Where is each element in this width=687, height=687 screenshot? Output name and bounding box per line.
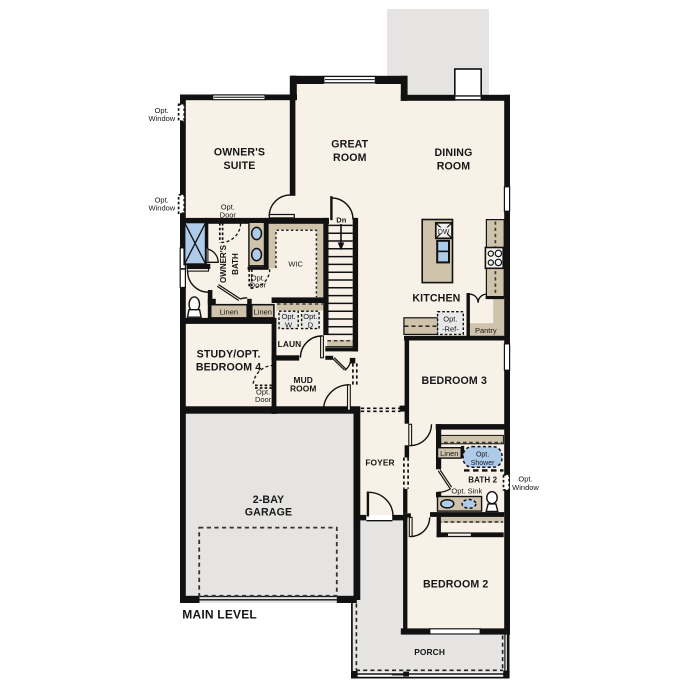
svg-text:-Ref-: -Ref- <box>442 324 459 333</box>
svg-text:Opt. Sink: Opt. Sink <box>451 487 482 496</box>
svg-text:BEDROOM 3: BEDROOM 3 <box>422 375 488 387</box>
svg-text:Window: Window <box>149 203 176 212</box>
svg-text:OWNER'S: OWNER'S <box>219 244 228 283</box>
svg-text:SUITE: SUITE <box>224 160 256 172</box>
svg-text:MAIN LEVEL: MAIN LEVEL <box>182 608 257 622</box>
svg-text:WIC: WIC <box>288 260 303 269</box>
svg-text:DINING: DINING <box>435 147 473 159</box>
svg-text:KITCHEN: KITCHEN <box>412 293 460 305</box>
svg-text:BEDROOM 2: BEDROOM 2 <box>423 579 489 591</box>
svg-text:STUDY/OPT.: STUDY/OPT. <box>197 349 261 361</box>
svg-text:BATH 2: BATH 2 <box>468 476 497 485</box>
svg-text:DW: DW <box>438 229 450 236</box>
svg-text:LAUN: LAUN <box>278 339 302 349</box>
svg-text:Pantry: Pantry <box>475 326 497 335</box>
svg-text:Door: Door <box>255 395 272 404</box>
svg-text:2-BAY: 2-BAY <box>253 494 285 506</box>
svg-text:Linen: Linen <box>254 308 272 317</box>
svg-text:Opt.: Opt. <box>443 314 457 323</box>
svg-text:GREAT: GREAT <box>331 139 368 151</box>
svg-text:D: D <box>308 321 314 330</box>
svg-text:GARAGE: GARAGE <box>245 506 292 518</box>
svg-text:ROOM: ROOM <box>437 160 471 172</box>
svg-text:Window: Window <box>149 114 176 123</box>
svg-text:BEDROOM 4: BEDROOM 4 <box>196 361 262 373</box>
svg-text:ROOM: ROOM <box>333 152 367 164</box>
svg-text:Linen: Linen <box>440 449 458 458</box>
svg-text:Shower: Shower <box>471 460 495 467</box>
svg-text:Linen: Linen <box>220 308 238 317</box>
svg-text:FOYER: FOYER <box>365 457 394 467</box>
svg-text:Dn: Dn <box>336 215 346 224</box>
svg-text:Window: Window <box>512 483 539 492</box>
svg-text:ROOM: ROOM <box>290 384 316 394</box>
svg-text:W: W <box>285 321 293 330</box>
svg-text:Door: Door <box>250 280 267 289</box>
svg-text:BATH: BATH <box>231 253 240 275</box>
svg-text:Opt.: Opt. <box>476 452 489 459</box>
svg-text:Door: Door <box>220 211 237 220</box>
svg-text:OWNER'S: OWNER'S <box>214 147 265 159</box>
svg-text:PORCH: PORCH <box>414 647 445 657</box>
